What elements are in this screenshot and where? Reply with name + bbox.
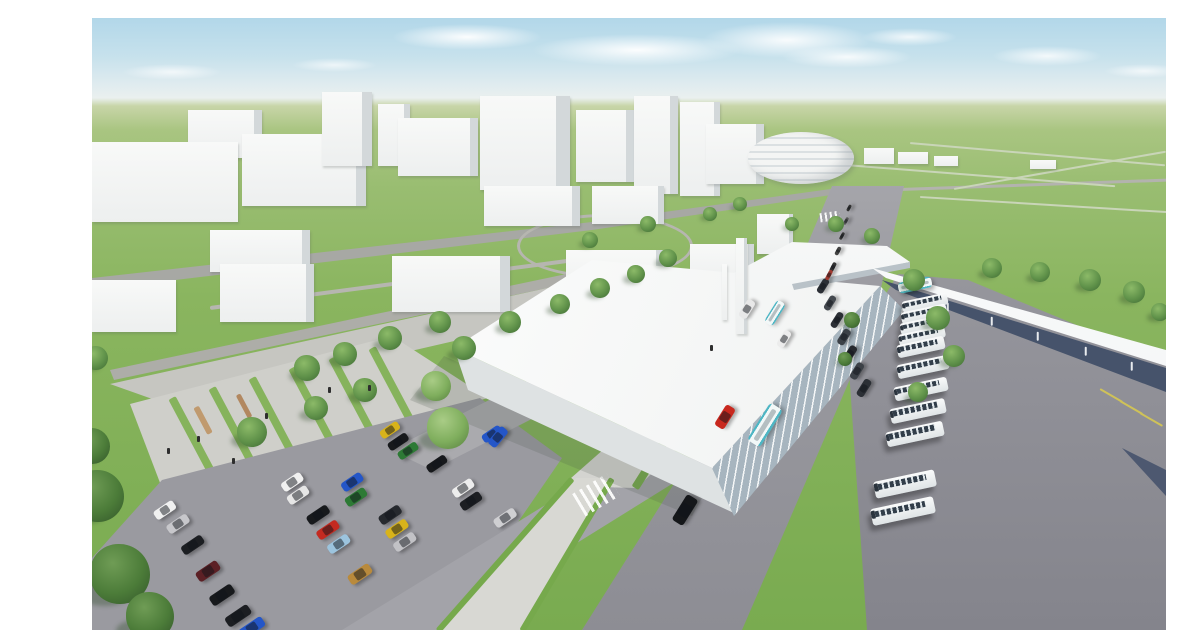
car-windshield (718, 411, 731, 424)
tree-shadow (92, 500, 108, 523)
cloud (782, 46, 912, 68)
tree-shadow (730, 205, 743, 211)
terminal-side-wall (92, 18, 1166, 630)
car (842, 344, 858, 364)
tree-shadow (1026, 274, 1044, 283)
car-windshield (350, 491, 362, 503)
field-path (846, 164, 1115, 187)
building (92, 142, 238, 222)
car-windshield (353, 568, 367, 581)
tree-canopy (703, 207, 717, 221)
tree (294, 355, 320, 381)
tree (92, 470, 124, 522)
parked-bus (896, 336, 946, 359)
plaza-strip (208, 386, 255, 466)
main-road (92, 18, 1166, 630)
car (305, 504, 330, 525)
building-side (500, 256, 510, 312)
tree (1079, 269, 1101, 291)
car (823, 294, 837, 311)
bus-front (897, 367, 901, 374)
field-path (920, 196, 1166, 213)
tree-shadow (637, 225, 651, 232)
canopy-post (947, 303, 949, 312)
tree (943, 345, 965, 367)
tree-shadow (586, 290, 604, 299)
building (392, 256, 510, 312)
tree-canopy (452, 336, 476, 360)
building-side (572, 186, 580, 226)
parked-bus (901, 292, 948, 313)
tree-shadow (419, 431, 457, 450)
car-windshield (384, 425, 395, 436)
car-windshield (833, 316, 842, 325)
bus-windows (901, 328, 939, 340)
building-side (756, 124, 764, 184)
car-windshield (779, 334, 788, 344)
car (459, 490, 484, 511)
van (672, 494, 699, 526)
city-bus (747, 402, 783, 447)
car-windshield (332, 538, 345, 551)
tree (452, 336, 476, 360)
terminal-roof (92, 18, 1166, 630)
cloud (992, 46, 1102, 66)
building-side (789, 214, 793, 254)
car-windshield (836, 249, 841, 254)
car (347, 562, 374, 585)
plaza-strip (368, 346, 415, 426)
car (839, 232, 845, 240)
tree-canopy (1151, 303, 1166, 321)
tree-shadow (904, 394, 922, 403)
building-side (714, 102, 720, 196)
building (188, 110, 262, 158)
parked-bus (889, 398, 947, 424)
building (690, 244, 754, 286)
parked-bus (900, 303, 947, 324)
tree (126, 592, 174, 630)
bus-windows (900, 358, 942, 372)
tree-shadow (939, 358, 959, 368)
canopy-post (991, 317, 993, 326)
car (340, 472, 364, 493)
building (592, 186, 664, 224)
pedestrian (265, 413, 268, 419)
tree-canopy (427, 407, 469, 449)
parked-bus (899, 314, 946, 335)
tree-shadow (623, 275, 639, 283)
parked-bus (893, 377, 949, 402)
car (776, 329, 792, 349)
bus-windows (893, 402, 938, 417)
bus-windows (874, 501, 925, 518)
car-windshield (826, 299, 834, 308)
tree (733, 197, 747, 211)
car-windshield (383, 509, 396, 521)
car-windshield (286, 476, 298, 488)
tree-canopy (429, 311, 451, 333)
car (224, 604, 252, 628)
tree-shadow (116, 620, 159, 630)
building-side (254, 110, 262, 158)
tree (237, 417, 267, 447)
tree-canopy (926, 306, 950, 330)
tree-shadow (978, 270, 996, 279)
tree-canopy (838, 352, 852, 366)
car-windshield (498, 512, 511, 524)
building-side (658, 186, 664, 224)
tree-shadow (1119, 294, 1139, 304)
screenshot (0, 0, 1200, 630)
car-windshield (831, 264, 836, 269)
car-windshield (844, 219, 848, 223)
cloud (1104, 64, 1166, 78)
crosswalk (819, 211, 840, 223)
tree (333, 342, 357, 366)
building (1030, 160, 1056, 169)
bus-windows (903, 307, 940, 319)
parked-bus (870, 496, 936, 526)
car (387, 432, 410, 452)
terminal-street (92, 18, 1166, 630)
canopy-post (1131, 362, 1133, 371)
plaza-strip-tan (236, 393, 253, 418)
terminal-canopy (92, 18, 1166, 630)
bus-front (870, 511, 875, 519)
tree-shadow (921, 320, 943, 331)
car-windshield (742, 304, 753, 315)
tree-canopy (627, 265, 645, 283)
tree-canopy (550, 294, 570, 314)
tree-canopy (353, 378, 377, 402)
bus-front (894, 389, 899, 396)
building-side (748, 244, 754, 286)
tree-shadow (447, 350, 469, 361)
tree-canopy (126, 592, 174, 630)
plaza-strip (168, 396, 215, 476)
building-side (470, 118, 478, 176)
building (398, 118, 478, 176)
parked-bus (885, 421, 945, 448)
tree (703, 207, 717, 221)
car (451, 478, 475, 499)
distant-street (92, 18, 1166, 630)
building (566, 250, 664, 302)
parked-bus (896, 355, 950, 380)
verge-strip (519, 477, 614, 630)
terminal-apron (92, 18, 1166, 630)
city-bus (897, 276, 933, 294)
car-windshield (431, 458, 443, 469)
building (706, 124, 764, 184)
car (180, 534, 206, 556)
tree (304, 396, 328, 420)
stall-line (1140, 412, 1164, 427)
car-windshield (852, 366, 861, 376)
tree (627, 265, 645, 283)
car (829, 262, 837, 273)
car-windshield (859, 383, 869, 393)
tree-canopy (640, 216, 656, 232)
building (702, 276, 748, 302)
car (856, 378, 873, 398)
tree (550, 294, 570, 314)
tree-shadow (299, 410, 321, 421)
tree-shadow (579, 241, 593, 248)
car-windshield (840, 234, 844, 238)
car (834, 246, 842, 256)
plaza-strip (288, 366, 335, 446)
car (396, 441, 419, 461)
tree-canopy (499, 311, 521, 333)
building (934, 156, 958, 166)
tree (908, 382, 928, 402)
tree-shadow (425, 324, 445, 334)
car (326, 533, 352, 555)
stall-line (1100, 388, 1124, 403)
tree-canopy (1030, 262, 1050, 282)
car (195, 560, 222, 583)
bus-front (873, 484, 878, 492)
tree (785, 217, 799, 231)
building (92, 280, 176, 332)
parked-bus (873, 469, 937, 499)
pedestrian (368, 385, 371, 391)
car-windshield (231, 609, 245, 623)
car-windshield (847, 206, 851, 210)
tree (838, 352, 852, 366)
canopy-post (1085, 347, 1087, 356)
car (825, 269, 834, 281)
plaza-strip (248, 376, 295, 456)
pedestrian (710, 345, 713, 351)
car (846, 204, 852, 212)
tree-shadow (289, 370, 312, 382)
tree-shadow (231, 434, 258, 448)
bus-windows (753, 409, 776, 441)
canopy-post (1037, 332, 1039, 341)
car (830, 311, 845, 329)
cloud (292, 58, 377, 72)
tree-canopy (785, 217, 799, 231)
tree (640, 216, 656, 232)
building-side (626, 110, 634, 182)
rendering (92, 18, 1166, 630)
building (680, 102, 720, 196)
car (286, 485, 311, 506)
tree (864, 228, 880, 244)
bus-windows (904, 296, 941, 308)
tree (590, 278, 610, 298)
car-windshield (845, 349, 854, 359)
plaza-strip (328, 356, 375, 436)
terminal-pylon (736, 238, 747, 334)
pedestrian (328, 387, 331, 393)
car (492, 507, 517, 529)
building (220, 264, 314, 322)
bus-front (898, 336, 902, 342)
tree-canopy (590, 278, 610, 298)
tree-canopy (92, 428, 110, 464)
parked-bus (898, 325, 946, 347)
tree-canopy (943, 345, 965, 367)
car-windshield (457, 482, 469, 494)
cloud (532, 34, 742, 66)
car (238, 616, 267, 630)
building (576, 110, 634, 182)
building (378, 104, 410, 166)
tree-shadow (835, 360, 848, 366)
cloud (702, 22, 872, 58)
car-windshield (321, 524, 334, 536)
bus-front (897, 347, 901, 353)
car-windshield (346, 476, 358, 488)
tree (378, 326, 402, 350)
city-bus (764, 299, 786, 326)
tree-canopy (582, 232, 598, 248)
tree (92, 346, 108, 370)
building (480, 96, 570, 190)
tree (1151, 303, 1166, 321)
car-windshield (292, 489, 304, 501)
tree (659, 249, 677, 267)
tree-canopy (982, 258, 1002, 278)
tree-canopy (733, 197, 747, 211)
pedestrian (197, 436, 200, 442)
terminal-shadow (92, 18, 1166, 630)
car (836, 328, 852, 347)
depot-canopy-underside (92, 18, 1166, 630)
tree-canopy (421, 371, 451, 401)
entrance-road (92, 18, 1166, 630)
terminal-canopy-edge (92, 18, 1166, 630)
tree (92, 428, 110, 464)
tree-canopy (659, 249, 677, 267)
building (634, 96, 678, 194)
tree-shadow (415, 388, 442, 402)
building-side (556, 96, 570, 190)
building-side (356, 134, 366, 206)
car (152, 499, 177, 520)
tree-shadow (861, 237, 875, 244)
tree (844, 312, 860, 328)
car-windshield (492, 431, 504, 443)
car-windshield (201, 565, 215, 578)
tree-shadow (825, 225, 839, 232)
verge-strip (436, 477, 575, 630)
terminal-glass-facade (92, 18, 1166, 630)
building-side (656, 250, 664, 302)
tree-shadow (782, 225, 795, 231)
tree-shadow (841, 321, 855, 328)
round-parking-building (748, 132, 854, 184)
car-windshield (392, 437, 404, 448)
tree-canopy (92, 470, 124, 522)
parking-lot (92, 18, 1166, 630)
car-windshield (390, 523, 403, 535)
car-windshield (465, 495, 477, 507)
tree-canopy (903, 269, 925, 291)
horizon-road (898, 179, 1166, 191)
depot-canopy-roof (92, 18, 1166, 630)
tree-canopy (304, 396, 328, 420)
canopy-corner-shadow (92, 18, 1166, 630)
car (379, 420, 402, 439)
building (210, 230, 310, 272)
car (843, 217, 849, 225)
car-windshield (245, 621, 259, 630)
car (344, 486, 369, 507)
car-windshield (311, 509, 324, 521)
bus-front (889, 411, 894, 418)
car-windshield (186, 539, 199, 552)
tree (429, 311, 451, 333)
pedestrian (167, 448, 170, 454)
car-windshield (826, 272, 831, 278)
bus-windows (768, 303, 782, 322)
car (377, 504, 402, 525)
building (757, 214, 793, 254)
service-road (92, 18, 1166, 630)
tree (427, 407, 469, 449)
tree-canopy (92, 544, 150, 604)
car-windshield (402, 446, 414, 457)
bus-bay-marking (725, 317, 753, 341)
bus-windows (899, 339, 938, 352)
car-windshield (171, 518, 184, 530)
lawn-path (210, 256, 592, 310)
car (315, 519, 341, 541)
tree (1123, 281, 1145, 303)
tree-canopy (1123, 281, 1145, 303)
tree-shadow (348, 392, 370, 403)
bus-windows (877, 474, 927, 490)
building-side (744, 238, 747, 334)
bus-depot (92, 18, 1166, 630)
bus-windows (901, 280, 928, 289)
cloud (122, 64, 222, 80)
lawn-path-loop (517, 214, 693, 278)
tree-shadow (655, 259, 671, 267)
tree-shadow (495, 324, 515, 334)
tree-canopy (864, 228, 880, 244)
tree-shadow (92, 579, 132, 606)
car-windshield (819, 282, 827, 291)
building (242, 134, 366, 206)
bus-front (901, 314, 905, 320)
car-windshield (215, 588, 229, 601)
bus-windows (889, 425, 936, 440)
building-side (306, 264, 314, 322)
building (898, 152, 928, 164)
car-windshield (839, 332, 848, 341)
tree (421, 371, 451, 401)
car (392, 531, 418, 553)
car (816, 277, 830, 294)
tree-canopy (92, 346, 108, 370)
building (322, 92, 372, 166)
car-windshield (677, 502, 693, 518)
tree-shadow (1147, 313, 1163, 321)
tree-canopy (333, 342, 357, 366)
car (849, 361, 865, 381)
car (165, 513, 190, 535)
building (864, 148, 894, 164)
car (208, 583, 236, 607)
tree-shadow (92, 449, 99, 465)
bus-windows (902, 318, 939, 330)
